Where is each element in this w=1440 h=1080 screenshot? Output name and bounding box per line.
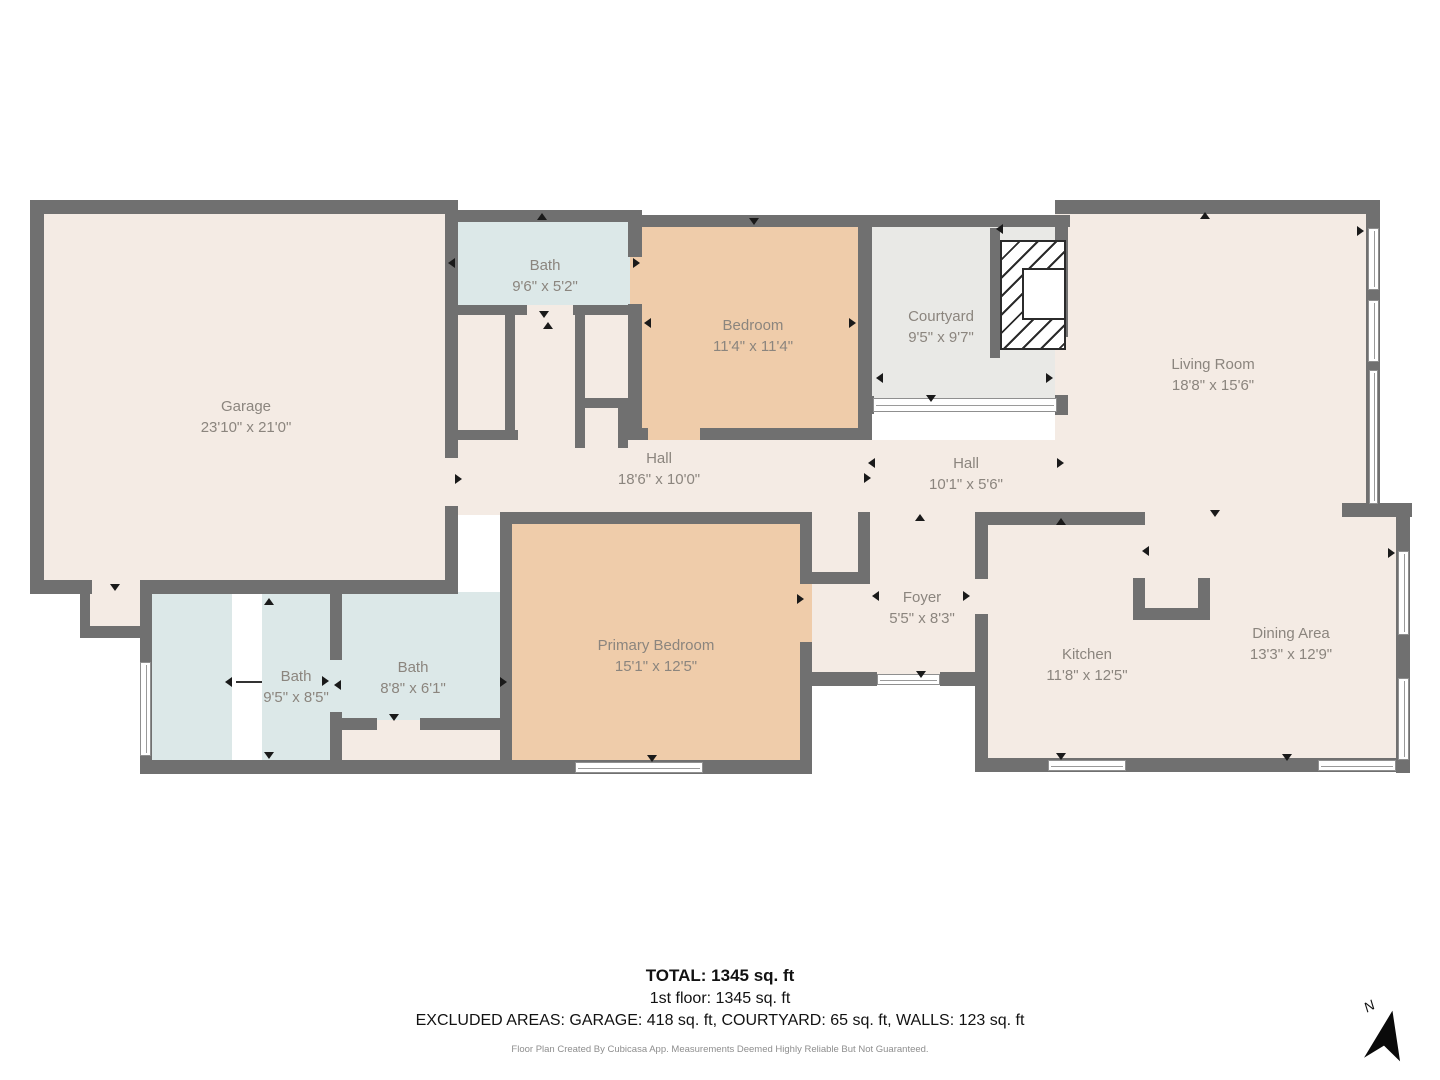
first-floor-area-text: 1st floor: 1345 sq. ft bbox=[0, 990, 1440, 1008]
window bbox=[140, 662, 151, 756]
room-label-living: Living Room 18'8" x 15'6" bbox=[1171, 354, 1254, 396]
door-arrow-up bbox=[1056, 518, 1066, 525]
door-arrow-left bbox=[876, 373, 883, 383]
wall-segment bbox=[858, 215, 872, 407]
room-label-bath-left: Bath 9'5" x 8'5" bbox=[263, 666, 329, 708]
door-arrow-right bbox=[455, 474, 462, 484]
room-dims: 11'4" x 11'4" bbox=[713, 336, 793, 357]
wall-segment bbox=[628, 304, 642, 440]
room-dims: 11'8" x 12'5" bbox=[1046, 665, 1127, 686]
door-arrow-right bbox=[963, 591, 970, 601]
door-arrow-left bbox=[448, 258, 455, 268]
room-label-garage: Garage 23'10" x 21'0" bbox=[201, 396, 292, 438]
door-arrow-left bbox=[996, 224, 1003, 234]
wall-segment bbox=[618, 408, 628, 448]
wall-segment bbox=[858, 215, 1070, 227]
door-arrow-down bbox=[647, 755, 657, 762]
room-name: Courtyard bbox=[908, 306, 974, 327]
room-dims: 8'8" x 6'1" bbox=[380, 678, 446, 699]
summary-block: TOTAL: 1345 sq. ft 1st floor: 1345 sq. f… bbox=[0, 966, 1440, 1055]
door-arrow-right bbox=[1046, 373, 1053, 383]
window bbox=[1398, 551, 1409, 635]
wall-segment bbox=[500, 512, 512, 774]
window bbox=[575, 762, 703, 773]
room-name: Bedroom bbox=[713, 315, 793, 336]
door-arrow-right bbox=[633, 258, 640, 268]
wall-segment bbox=[800, 642, 812, 774]
door-arrow-down bbox=[389, 714, 399, 721]
door-arrow-left bbox=[644, 318, 651, 328]
room-name: Kitchen bbox=[1046, 644, 1127, 665]
room-name: Garage bbox=[201, 396, 292, 417]
door-arrow-left bbox=[872, 591, 879, 601]
disclaimer-text: Floor Plan Created By Cubicasa App. Meas… bbox=[0, 1044, 1440, 1055]
room-kitchen-dining bbox=[975, 512, 1410, 772]
wall-segment bbox=[500, 512, 802, 524]
room-dims: 9'6" x 5'2" bbox=[512, 276, 578, 297]
door-arrow-right bbox=[1057, 458, 1064, 468]
room-dims: 9'5" x 8'5" bbox=[263, 687, 329, 708]
room-name: Living Room bbox=[1171, 354, 1254, 375]
door-arrow-down bbox=[916, 671, 926, 678]
door-arrow-down bbox=[1056, 753, 1066, 760]
window bbox=[1318, 760, 1396, 771]
door-arrow-right bbox=[1388, 548, 1395, 558]
room-label-bedroom: Bedroom 11'4" x 11'4" bbox=[713, 315, 793, 357]
room-dims: 15'1" x 12'5" bbox=[598, 656, 715, 677]
wall-segment bbox=[628, 428, 648, 440]
wall-segment bbox=[30, 200, 458, 214]
wall-segment bbox=[858, 396, 874, 414]
wall-segment bbox=[505, 315, 515, 440]
door-arrow-down bbox=[926, 395, 936, 402]
wall-segment bbox=[330, 718, 377, 730]
door-arrow-up bbox=[915, 514, 925, 521]
door-arrow-right bbox=[864, 473, 871, 483]
wall-segment bbox=[585, 398, 640, 408]
wall-segment bbox=[445, 210, 458, 458]
door-arrow-down bbox=[1210, 510, 1220, 517]
total-area-text: TOTAL: 1345 sq. ft bbox=[0, 966, 1440, 986]
floorplan-canvas: Garage 23'10" x 21'0" Bath 9'6" x 5'2" B… bbox=[0, 0, 1440, 1080]
room-name: Foyer bbox=[889, 587, 955, 608]
room-dims: 13'3" x 12'9" bbox=[1250, 644, 1332, 665]
room-name: Hall bbox=[618, 448, 700, 469]
wall-segment bbox=[458, 430, 518, 440]
window bbox=[1368, 228, 1379, 290]
wall-segment bbox=[30, 200, 44, 594]
wall-segment bbox=[1057, 396, 1068, 414]
wall-segment bbox=[700, 428, 870, 440]
door-arrow-up bbox=[264, 598, 274, 605]
wall-segment bbox=[575, 315, 585, 448]
door-arrow-down bbox=[1282, 754, 1292, 761]
wall-segment bbox=[330, 592, 342, 660]
room-name: Primary Bedroom bbox=[598, 635, 715, 656]
door-arrow-down bbox=[539, 311, 549, 318]
door-arrow-up bbox=[1200, 212, 1210, 219]
room-label-foyer: Foyer 5'5" x 8'3" bbox=[889, 587, 955, 629]
wall-segment bbox=[140, 580, 458, 594]
window bbox=[873, 398, 1057, 412]
room-name: Dining Area bbox=[1250, 623, 1332, 644]
room-dims: 10'1" x 5'6" bbox=[929, 474, 1003, 495]
front-door bbox=[877, 674, 940, 685]
north-arrow-icon bbox=[1354, 1005, 1418, 1076]
wall-segment bbox=[1055, 200, 1380, 214]
wall-segment bbox=[990, 228, 1000, 358]
door-arrow-right bbox=[500, 677, 507, 687]
wall-segment bbox=[140, 760, 512, 774]
excluded-areas-text: EXCLUDED AREAS: GARAGE: 418 sq. ft, COUR… bbox=[0, 1012, 1440, 1030]
window bbox=[1398, 678, 1409, 760]
room-dims: 23'10" x 21'0" bbox=[201, 417, 292, 438]
wall-segment bbox=[975, 614, 988, 696]
room-name: Hall bbox=[929, 453, 1003, 474]
door-arrow-down bbox=[110, 584, 120, 591]
door-arrow-right bbox=[849, 318, 856, 328]
room-label-primary: Primary Bedroom 15'1" x 12'5" bbox=[598, 635, 715, 677]
room-name: Bath bbox=[380, 657, 446, 678]
bath-pocket-line bbox=[236, 681, 262, 683]
fireplace-firebox bbox=[1022, 268, 1066, 320]
door-arrow-right bbox=[797, 594, 804, 604]
window bbox=[1369, 370, 1378, 504]
room-dims: 18'8" x 15'6" bbox=[1171, 375, 1254, 396]
room-label-courtyard: Courtyard 9'5" x 9'7" bbox=[908, 306, 974, 348]
wall-segment bbox=[805, 672, 877, 686]
wall-segment bbox=[420, 718, 512, 730]
door-arrow-down bbox=[749, 218, 759, 225]
room-dims: 18'6" x 10'0" bbox=[618, 469, 700, 490]
wall-segment bbox=[1133, 608, 1210, 620]
room-label-kitchen: Kitchen 11'8" x 12'5" bbox=[1046, 644, 1127, 686]
door-arrow-left bbox=[334, 680, 341, 690]
wall-segment bbox=[445, 506, 458, 594]
room-label-hall: Hall 18'6" x 10'0" bbox=[618, 448, 700, 490]
room-label-hall-2: Hall 10'1" x 5'6" bbox=[929, 453, 1003, 495]
room-name: Bath bbox=[512, 255, 578, 276]
wall-segment bbox=[573, 305, 640, 315]
door-arrow-left bbox=[1142, 546, 1149, 556]
room-dims: 9'5" x 9'7" bbox=[908, 327, 974, 348]
room-label-dining: Dining Area 13'3" x 12'9" bbox=[1250, 623, 1332, 665]
compass: N bbox=[1352, 998, 1422, 1078]
wall-segment bbox=[800, 572, 870, 584]
room-dims: 5'5" x 8'3" bbox=[889, 608, 955, 629]
wall-segment bbox=[445, 305, 527, 315]
door-arrow-up bbox=[543, 322, 553, 329]
door-arrow-right bbox=[1357, 226, 1364, 236]
wall-segment bbox=[80, 626, 148, 638]
bath-pocket-strip bbox=[232, 592, 262, 762]
room-label-bath-mid: Bath 8'8" x 6'1" bbox=[380, 657, 446, 699]
room-label-bath-upper: Bath 9'6" x 5'2" bbox=[512, 255, 578, 297]
door-arrow-down bbox=[264, 752, 274, 759]
window bbox=[1048, 760, 1126, 771]
door-arrow-up bbox=[537, 213, 547, 220]
garage-alcove bbox=[90, 592, 140, 628]
wall-segment bbox=[628, 210, 642, 257]
door-arrow-left bbox=[225, 677, 232, 687]
window bbox=[1368, 300, 1379, 362]
room-name: Bath bbox=[263, 666, 329, 687]
door-arrow-left bbox=[868, 458, 875, 468]
